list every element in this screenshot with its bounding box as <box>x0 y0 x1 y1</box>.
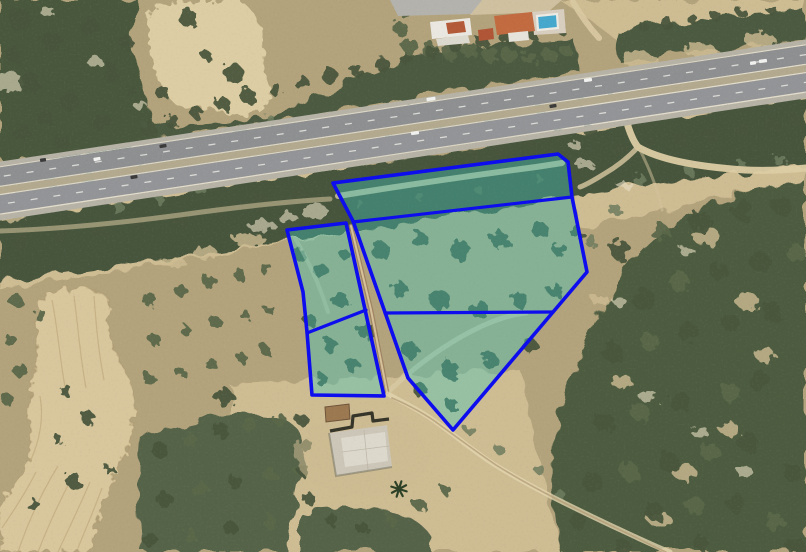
satellite-canvas <box>0 0 806 552</box>
parcel-divider <box>385 312 553 313</box>
map-viewport <box>0 0 806 552</box>
satellite-map <box>0 0 806 552</box>
